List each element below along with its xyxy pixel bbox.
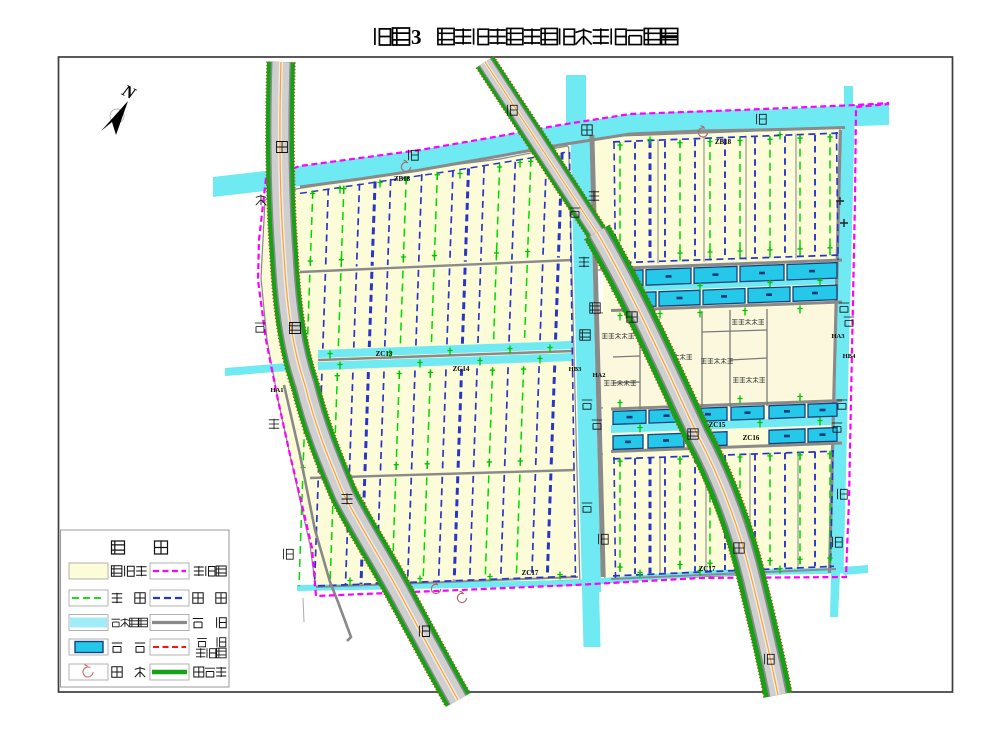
svg-text:HA1: HA1 [271,387,284,394]
svg-text:ZC17: ZC17 [699,565,716,573]
svg-text:3: 3 [411,25,422,49]
svg-text:ZC16: ZC16 [743,434,760,442]
svg-text:ZB18: ZB18 [394,175,411,183]
svg-text:ZC13: ZC13 [376,350,393,358]
svg-text:ZC15: ZC15 [709,421,726,429]
svg-text:HA3: HA3 [832,333,846,340]
svg-text:HB4: HB4 [843,353,856,360]
svg-text:ZC17: ZC17 [522,569,539,577]
svg-text:ZC14: ZC14 [453,365,470,373]
svg-text:ZB18: ZB18 [715,138,732,146]
svg-text:HB3: HB3 [569,366,582,373]
svg-text:HA2: HA2 [593,372,606,379]
